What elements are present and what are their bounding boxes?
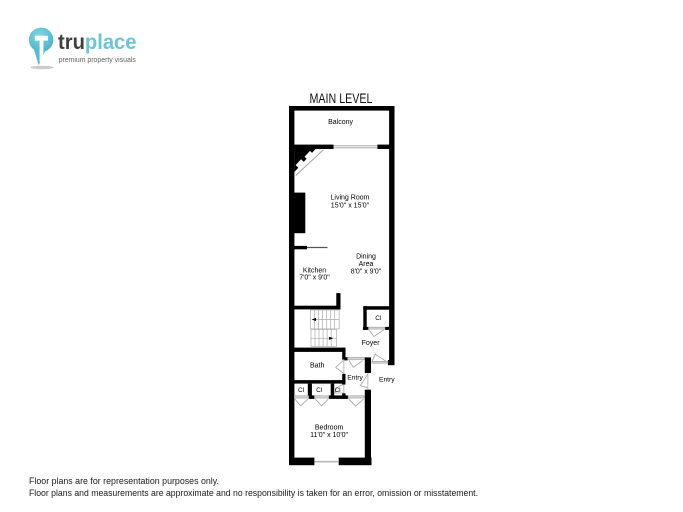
svg-text:7'0" x 9'0": 7'0" x 9'0" (299, 274, 330, 281)
svg-text:Bath: Bath (310, 363, 325, 370)
svg-text:Dining: Dining (356, 254, 376, 261)
svg-text:Foyer: Foyer (362, 340, 381, 347)
svg-text:Bedroom: Bedroom (315, 425, 344, 432)
svg-text:Entry: Entry (379, 377, 395, 384)
svg-text:Cl: Cl (316, 387, 322, 394)
svg-text:Cl: Cl (375, 315, 381, 322)
svg-text:11'0" x 10'0": 11'0" x 10'0" (310, 432, 348, 439)
svg-text:MAIN LEVEL: MAIN LEVEL (310, 91, 373, 106)
svg-text:Cl: Cl (298, 387, 304, 394)
svg-text:premium property visuals: premium property visuals (59, 55, 136, 64)
svg-text:Living Room: Living Room (331, 195, 370, 202)
svg-text:Entry: Entry (347, 375, 363, 382)
svg-text:truplace: truplace (58, 31, 137, 54)
svg-text:Floor plans are for representa: Floor plans are for representation purpo… (29, 476, 219, 486)
svg-text:Cl: Cl (335, 387, 341, 394)
svg-text:15'0" x 15'0": 15'0" x 15'0" (331, 203, 370, 210)
svg-text:Balcony: Balcony (328, 119, 353, 126)
svg-text:Area: Area (359, 261, 374, 268)
svg-text:8'0" x 9'0": 8'0" x 9'0" (351, 268, 382, 275)
svg-text:Floor plans and measurements a: Floor plans and measurements are approxi… (29, 488, 478, 498)
